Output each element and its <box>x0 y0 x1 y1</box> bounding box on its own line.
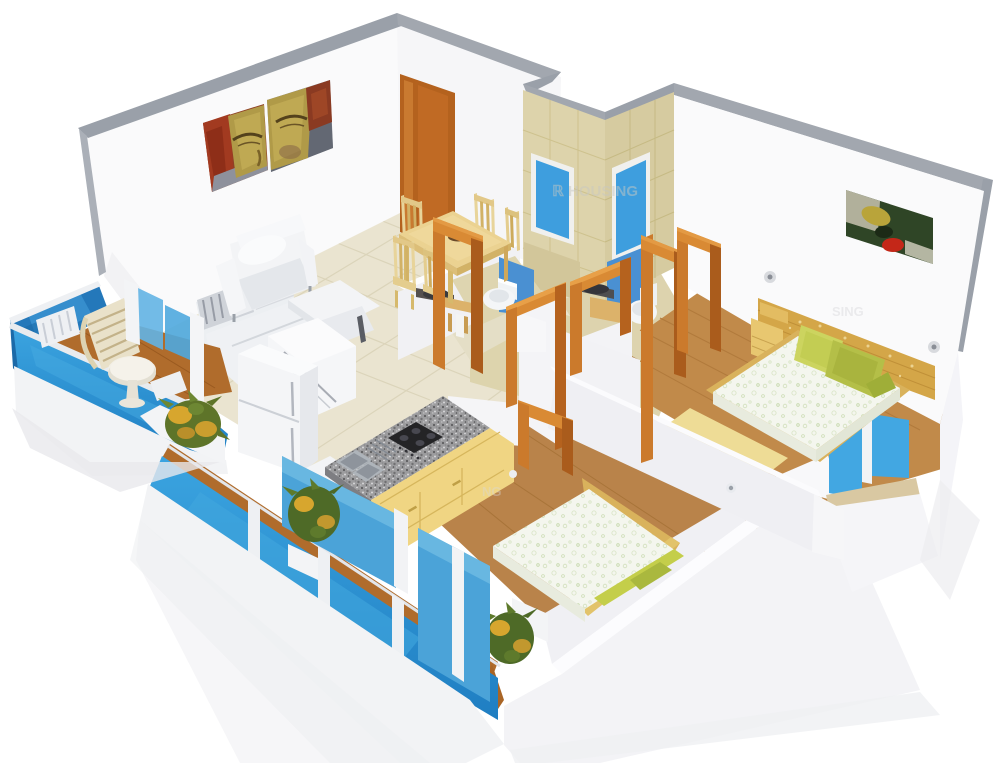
svg-text:NG: NG <box>482 484 502 499</box>
svg-text:ℝ HOUSING: ℝ HOUSING <box>552 183 638 200</box>
svg-text:SING: SING <box>832 304 864 319</box>
